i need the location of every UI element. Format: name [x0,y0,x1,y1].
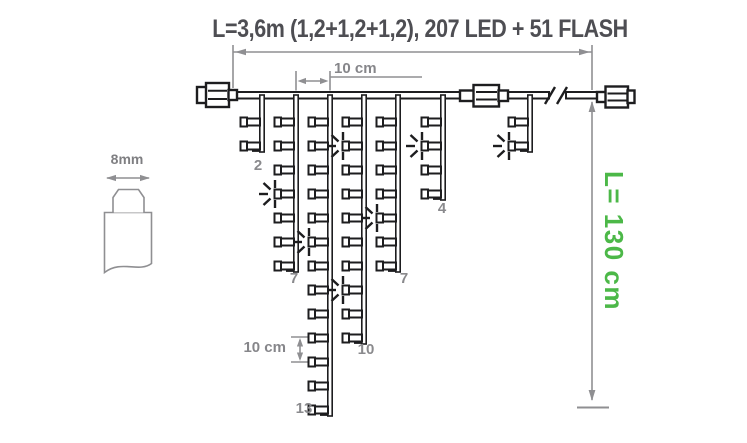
led-icon [241,142,261,151]
drop-spacing-label: 10 cm [334,60,377,77]
led-icon [343,118,363,127]
led-icon [275,118,295,127]
led-icon [309,358,329,367]
led-icon [509,142,529,151]
led-icon [309,166,329,175]
led-icon [343,262,363,271]
led-icon [343,238,363,247]
connector-middle [460,85,508,107]
drop [241,95,265,152]
led-icon [309,382,329,391]
flash-icon [493,132,509,160]
led-icon [309,262,329,271]
led-icon [377,262,397,271]
wire [236,92,597,99]
connector-right [597,87,635,108]
led-icon [343,190,363,199]
led-icon [241,118,261,127]
led-spacing-label: 10 cm [226,339,286,356]
led-icon [309,118,329,127]
led-icon [422,166,442,175]
led-icon [343,166,363,175]
led-icon [377,142,397,151]
led-icon [309,286,329,295]
flash-icon [406,132,422,160]
drop [406,95,445,200]
drop-count-label: 10 [358,341,375,358]
led-icon [275,238,295,247]
led-icon [422,190,442,199]
led-icon [343,286,363,295]
led-icon [509,118,529,127]
led-icon [309,334,329,343]
led-icon [377,166,397,175]
flash-icon [259,180,275,208]
led-icon [309,310,329,319]
cable-detail [105,175,152,273]
led-icon [377,214,397,223]
led-icon [275,142,295,151]
led-icon [343,214,363,223]
drop-count-label: 7 [290,270,298,287]
led-icon [275,166,295,175]
led-icon [343,142,363,151]
led-icon [377,190,397,199]
cable-width-label: 8mm [96,151,158,167]
connector-left [197,83,237,107]
drop-count-label: 2 [254,157,262,174]
led-icon [309,238,329,247]
led-icon [343,310,363,319]
top-span-dimension [233,45,592,90]
height-dimension-label: L= 130 cm [598,171,629,311]
diagram-title: L=3,6m (1,2+1,2+1,2), 207 LED + 51 FLASH [212,15,627,44]
drop-count-label: 4 [438,200,446,217]
led-icon [422,142,442,151]
led-icon [275,190,295,199]
led-icon [377,118,397,127]
diagram-canvas: L=3,6m (1,2+1,2+1,2), 207 LED + 51 FLASH… [0,0,747,443]
drop-count-label: 7 [400,270,408,287]
drop-count-label: 13 [296,400,313,417]
led-icon [275,214,295,223]
led-icon [309,190,329,199]
led-icon [309,214,329,223]
led-icon [309,142,329,151]
led-icon [422,118,442,127]
led-icon [377,238,397,247]
